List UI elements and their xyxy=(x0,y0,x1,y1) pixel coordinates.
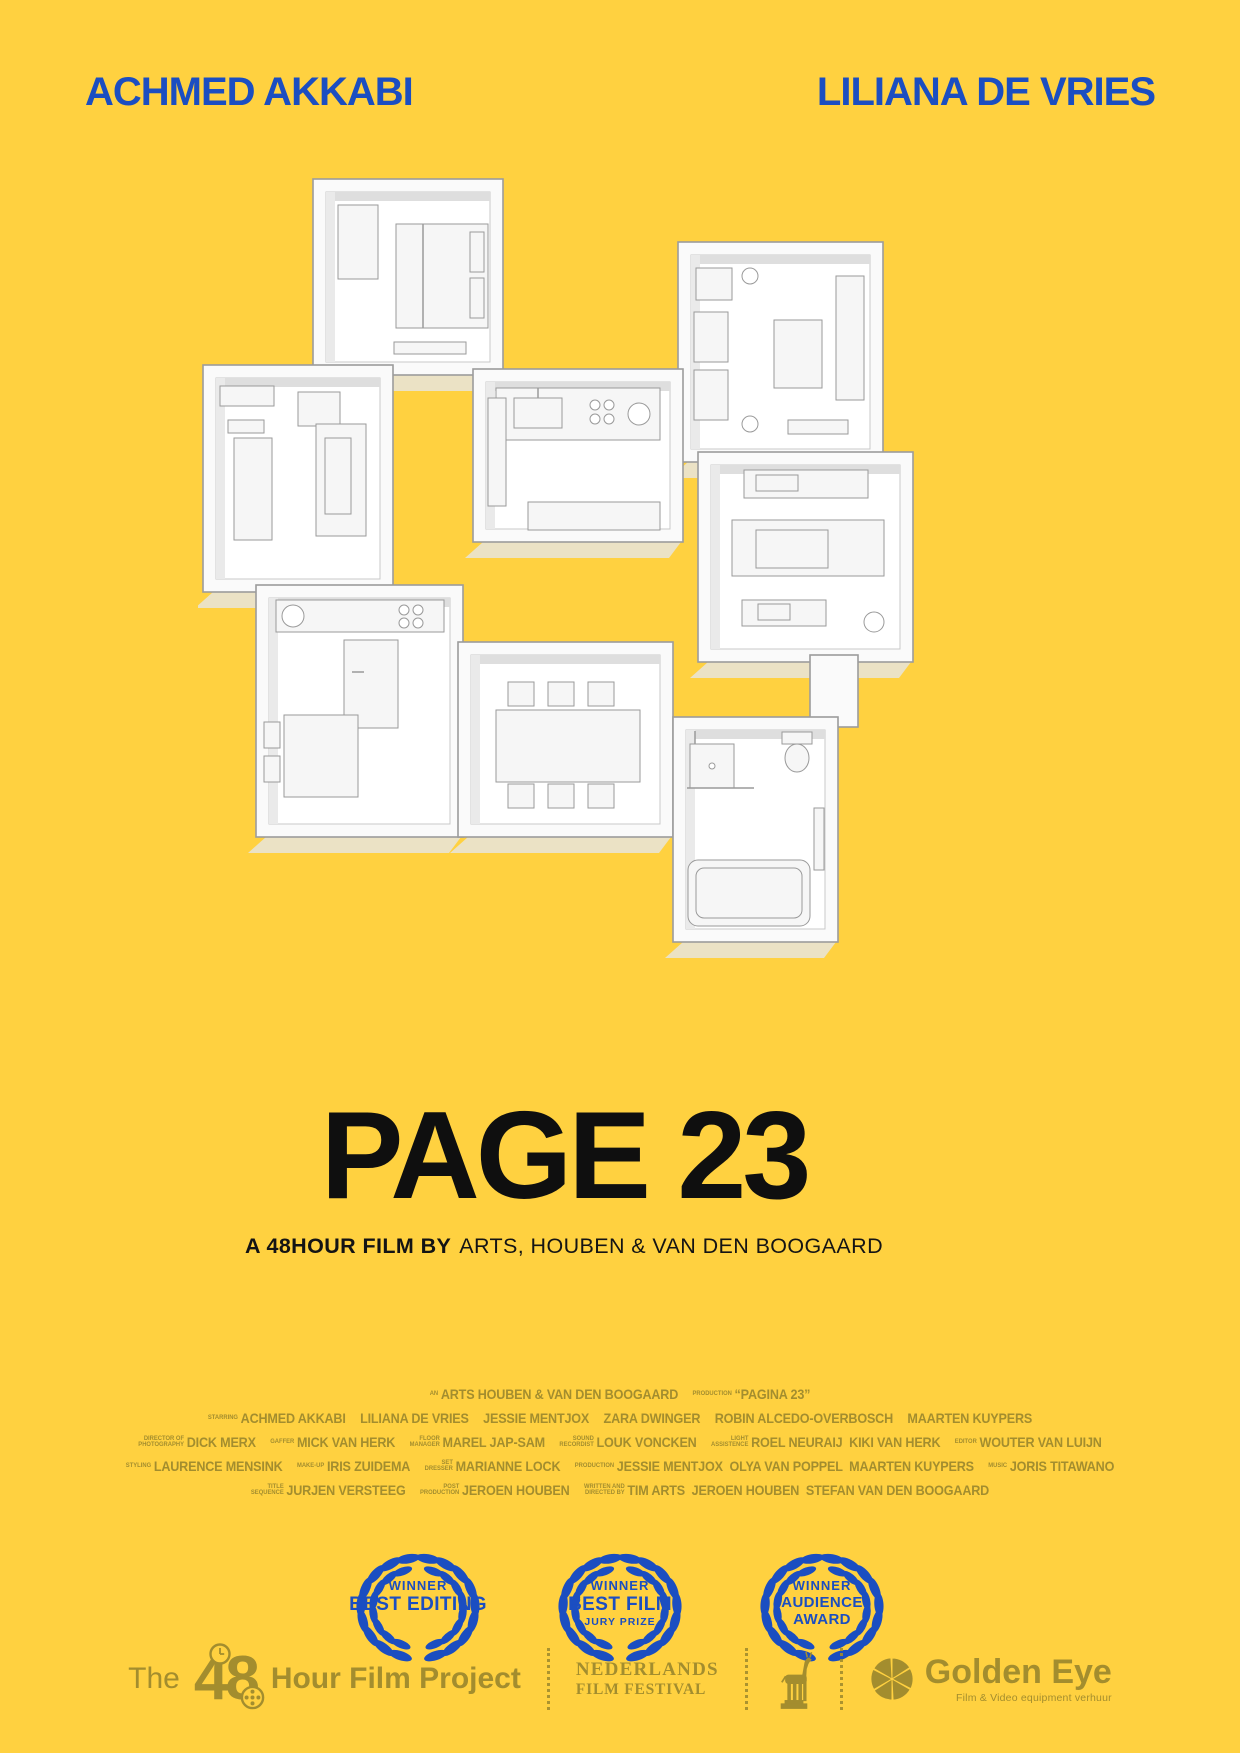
festival-logos-row: The 48 Hour Film Project xyxy=(0,1648,1240,1710)
credit-name: JESSIE MENTJOX OLYA VAN POPPEL MAARTEN K… xyxy=(617,1458,974,1474)
footer-divider xyxy=(840,1648,843,1710)
room-living-room xyxy=(678,242,883,462)
title-block: PAGE 23 A 48HOUR FILM BYARTS, HOUBEN & V… xyxy=(0,1094,1128,1259)
subtitle-rest: ARTS, HOUBEN & VAN DEN BOOGAARD xyxy=(459,1234,883,1258)
nff-line1: NEDERLANDS xyxy=(576,1660,719,1681)
room-bedroom xyxy=(313,179,503,375)
credit-segment: SET DRESSERMARIANNE LOCK xyxy=(425,1458,561,1474)
credit-line: DIRECTOR OF PHOTOGRAPHYDICK MERXGAFFERMI… xyxy=(138,1434,1101,1450)
credit-name: JURJEN VERSTEEG xyxy=(286,1482,405,1498)
credit-line: ANARTS HOUBEN & VAN DEN BOOGAARDPRODUCTI… xyxy=(430,1386,811,1402)
credit-name: MAREL JAP-SAM xyxy=(443,1434,545,1450)
credit-role-label: EDITOR xyxy=(955,1439,977,1446)
room-dining-room xyxy=(458,642,673,837)
credit-segment: PRODUCTIONJESSIE MENTJOX OLYA VAN POPPEL… xyxy=(575,1458,974,1474)
credit-role-label: SOUND RECORDIST xyxy=(559,1436,593,1449)
room-bathroom xyxy=(673,717,838,942)
credit-line: TITLE SEQUENCEJURJEN VERSTEEGPOST PRODUC… xyxy=(251,1482,989,1498)
fhp-the: The xyxy=(128,1662,180,1696)
credit-name: WOUTER VAN LUIJN xyxy=(980,1434,1102,1450)
shutter-aperture-icon xyxy=(869,1656,915,1702)
subtitle-bold: A 48HOUR FILM BY xyxy=(245,1234,451,1258)
credit-role-label: PRODUCTION xyxy=(575,1463,614,1470)
room-lounge xyxy=(203,365,393,592)
credit-line: STYLINGLAURENCE MENSINKMAKE-UPIRIS ZUIDE… xyxy=(126,1458,1114,1474)
footer-divider xyxy=(745,1648,748,1710)
credit-segment: JESSIE MENTJOX xyxy=(483,1410,589,1426)
credit-name: MAARTEN KUYPERS xyxy=(907,1410,1032,1426)
credit-role-label: STYLING xyxy=(126,1463,151,1470)
credit-segment: PRODUCTION“PAGINA 23” xyxy=(693,1386,811,1402)
room-kitchen-diner xyxy=(256,585,463,837)
golden-eye-title: Golden Eye xyxy=(925,1655,1112,1689)
credit-segment: LIGHT ASSISTENCEROEL NEURAIJ KIKI VAN HE… xyxy=(711,1434,940,1450)
48-hour-film-project-logo: The 48 Hour Film Project xyxy=(128,1648,521,1710)
credit-role-label: WRITTEN AND DIRECTED BY xyxy=(584,1484,625,1497)
film-reel-icon xyxy=(240,1685,265,1710)
credit-name: ZARA DWINGER xyxy=(604,1410,701,1426)
credit-role-label: LIGHT ASSISTENCE xyxy=(711,1436,748,1449)
credit-name: MICK VAN HERK xyxy=(297,1434,395,1450)
credit-role-label: AN xyxy=(430,1391,438,1398)
credit-name: LOUK VONCKEN xyxy=(597,1434,697,1450)
credit-segment: STYLINGLAURENCE MENSINK xyxy=(126,1458,283,1474)
laurel-text: WINNERBEST EDITING xyxy=(343,1579,493,1616)
credit-role-label: GAFFER xyxy=(270,1439,294,1446)
credit-name: “PAGINA 23” xyxy=(735,1386,811,1402)
billing-actor-left: ACHMED AKKABI xyxy=(85,70,413,115)
credit-segment: ZARA DWINGER xyxy=(604,1410,701,1426)
fhp-number: 48 xyxy=(188,1648,263,1710)
credit-role-label: STARRING xyxy=(208,1415,238,1422)
credit-segment: ANARTS HOUBEN & VAN DEN BOOGAARD xyxy=(430,1386,678,1402)
credit-segment: LILIANA DE VRIES xyxy=(360,1410,469,1426)
credit-role-label: FLOOR MANAGER xyxy=(410,1436,440,1449)
credit-segment: GAFFERMICK VAN HERK xyxy=(270,1434,395,1450)
nff-line2: FILM FESTIVAL xyxy=(576,1681,719,1698)
credit-segment: MUSICJORIS TITAWANO xyxy=(988,1458,1114,1474)
film-title: PAGE 23 xyxy=(0,1094,1128,1218)
credit-name: JEROEN HOUBEN xyxy=(462,1482,570,1498)
credit-name: TIM ARTS JEROEN HOUBEN STEFAN VAN DEN BO… xyxy=(627,1482,989,1498)
nederlands-film-festival-logo: NEDERLANDS FILM FESTIVAL xyxy=(576,1660,719,1698)
credit-segment: POST PRODUCTIONJEROEN HOUBEN xyxy=(420,1482,570,1498)
laurel-line: BEST EDITING xyxy=(343,1594,493,1616)
laurel-line: WINNER xyxy=(747,1579,897,1594)
golden-eye-subtitle: Film & Video equipment verhuur xyxy=(925,1692,1112,1704)
laurel-line: AUDIENCE xyxy=(747,1594,897,1611)
floorplan-illustration xyxy=(198,172,922,960)
credit-name: LAURENCE MENSINK xyxy=(154,1458,283,1474)
room-kitchen xyxy=(473,369,683,542)
credit-segment: EDITORWOUTER VAN LUIJN xyxy=(955,1434,1102,1450)
credit-name: ROEL NEURAIJ KIKI VAN HERK xyxy=(751,1434,940,1450)
credit-line: STARRINGACHMED AKKABILILIANA DE VRIESJES… xyxy=(208,1410,1032,1426)
credit-name: JESSIE MENTJOX xyxy=(483,1410,589,1426)
credit-name: ROBIN ALCEDO-OVERBOSCH xyxy=(715,1410,893,1426)
credit-name: JORIS TITAWANO xyxy=(1010,1458,1114,1474)
credit-segment: SOUND RECORDISTLOUK VONCKEN xyxy=(559,1434,696,1450)
credit-segment: TITLE SEQUENCEJURJEN VERSTEEG xyxy=(251,1482,406,1498)
footer-divider xyxy=(547,1648,550,1710)
film-subtitle: A 48HOUR FILM BYARTS, HOUBEN & VAN DEN B… xyxy=(0,1234,1128,1259)
credit-role-label: MAKE-UP xyxy=(297,1463,324,1470)
fhp-rest: Hour Film Project xyxy=(271,1662,521,1696)
laurel-line: WINNER xyxy=(343,1579,493,1594)
credit-segment: FLOOR MANAGERMAREL JAP-SAM xyxy=(410,1434,545,1450)
credit-segment: MAKE-UPIRIS ZUIDEMA xyxy=(297,1458,410,1474)
credit-name: ARTS HOUBEN & VAN DEN BOOGAARD xyxy=(441,1386,678,1402)
credit-segment: ROBIN ALCEDO-OVERBOSCH xyxy=(715,1410,893,1426)
laurel-line: WINNER xyxy=(545,1579,695,1594)
credit-role-label: MUSIC xyxy=(988,1463,1007,1470)
credit-segment: MAARTEN KUYPERS xyxy=(907,1410,1032,1426)
credit-role-label: SET DRESSER xyxy=(425,1460,453,1473)
credit-name: DICK MERX xyxy=(187,1434,256,1450)
credit-name: LILIANA DE VRIES xyxy=(360,1410,469,1426)
laurel-text: WINNERAUDIENCEAWARD xyxy=(747,1579,897,1628)
movie-poster: ACHMED AKKABI LILIANA DE VRIES PAGE 23 A… xyxy=(0,0,1240,1753)
credits-block: ANARTS HOUBEN & VAN DEN BOOGAARDPRODUCTI… xyxy=(62,1386,1178,1498)
credit-role-label: TITLE SEQUENCE xyxy=(251,1484,284,1497)
laurel-line: JURY PRIZE xyxy=(545,1616,695,1628)
credit-segment: STARRINGACHMED AKKABI xyxy=(208,1410,346,1426)
credit-role-label: DIRECTOR OF PHOTOGRAPHY xyxy=(138,1436,184,1449)
laurel-line: AWARD xyxy=(747,1611,897,1628)
laurel-text: WINNERBEST FILMJURY PRIZE xyxy=(545,1579,695,1628)
billing-actor-right: LILIANA DE VRIES xyxy=(817,70,1155,115)
laurel-line: BEST FILM xyxy=(545,1594,695,1616)
credit-name: ACHMED AKKABI xyxy=(241,1410,346,1426)
credit-role-label: POST PRODUCTION xyxy=(420,1484,459,1497)
credit-name: IRIS ZUIDEMA xyxy=(327,1458,410,1474)
room-media-room xyxy=(698,452,913,662)
clock-icon xyxy=(208,1642,232,1666)
credit-segment: WRITTEN AND DIRECTED BYTIM ARTS JEROEN H… xyxy=(584,1482,989,1498)
credit-name: MARIANNE LOCK xyxy=(456,1458,561,1474)
credit-segment: DIRECTOR OF PHOTOGRAPHYDICK MERX xyxy=(138,1434,256,1450)
golden-calf-icon xyxy=(774,1648,814,1710)
golden-eye-logo: Golden Eye Film & Video equipment verhuu… xyxy=(869,1655,1112,1704)
credit-role-label: PRODUCTION xyxy=(693,1391,732,1398)
